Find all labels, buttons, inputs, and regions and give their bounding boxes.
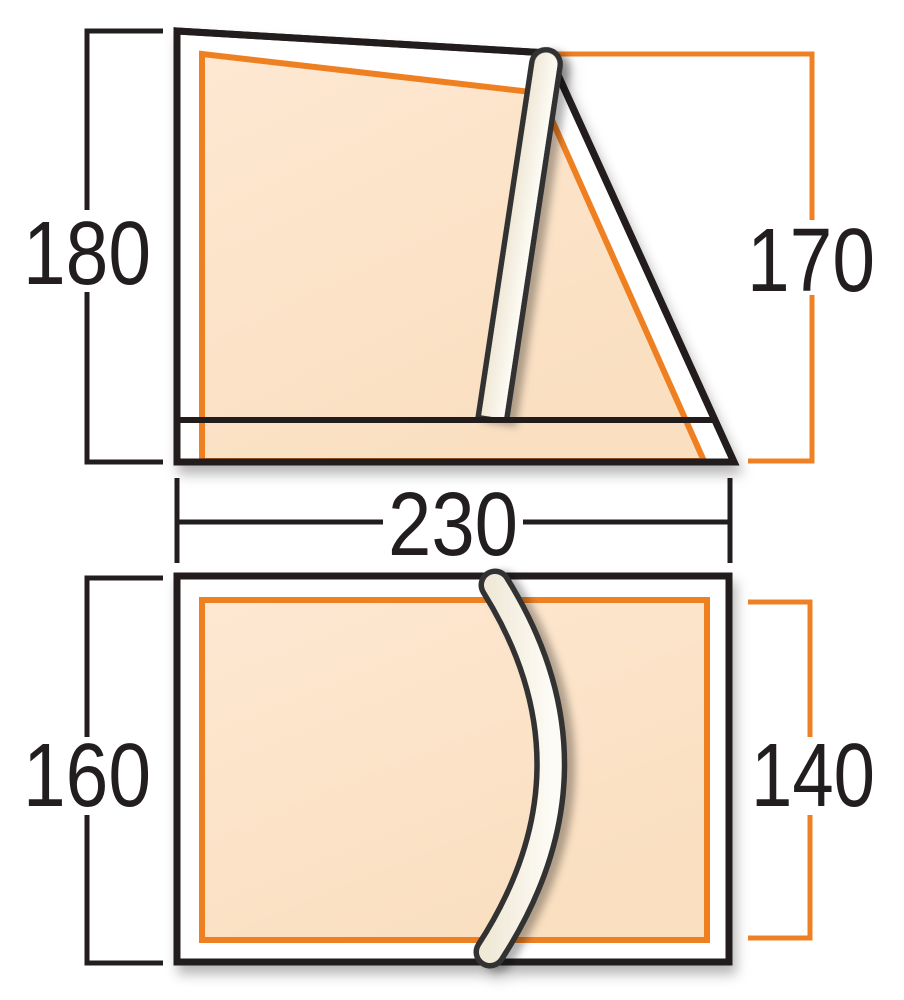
floor-inner-outline: [202, 600, 707, 940]
tent-dimension-diagram: 180 170 230 160 140: [0, 0, 904, 1000]
dimension-label-170: 170: [747, 211, 875, 311]
dimension-width: 230: [177, 475, 730, 575]
side-profile-view: [177, 31, 734, 462]
dimension-label-180: 180: [23, 204, 151, 304]
dimension-side-outer-height: 180: [23, 31, 163, 462]
floor-plan-view: [177, 576, 729, 962]
dimension-label-230: 230: [388, 475, 518, 575]
dimension-plan-outer-depth: 160: [23, 578, 163, 963]
dimension-label-140: 140: [751, 726, 875, 826]
dimension-plan-inner-depth: 140: [748, 602, 875, 938]
dimension-label-160: 160: [23, 726, 151, 826]
